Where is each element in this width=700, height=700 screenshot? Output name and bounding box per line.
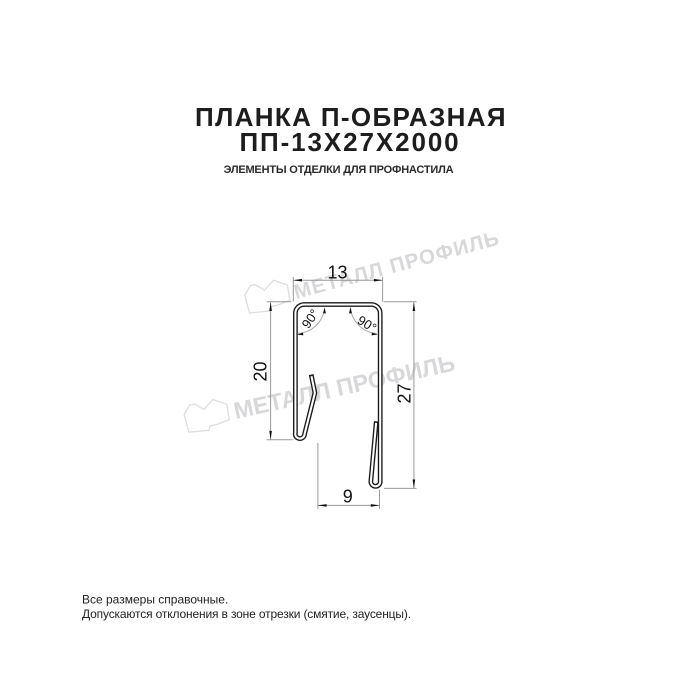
svg-text:Все размеры справочные.: Все размеры справочные. <box>82 593 228 607</box>
svg-text:90°: 90° <box>299 306 323 331</box>
svg-text:13: 13 <box>327 263 347 283</box>
svg-text:ЭЛЕМЕНТЫ ОТДЕЛКИ ДЛЯ ПРОФНАСТИ: ЭЛЕМЕНТЫ ОТДЕЛКИ ДЛЯ ПРОФНАСТИЛА <box>224 164 454 176</box>
svg-text:20: 20 <box>251 361 271 381</box>
svg-text:МЕТАЛЛ ПРОФИЛЬ: МЕТАЛЛ ПРОФИЛЬ <box>291 227 502 304</box>
svg-text:ПП-13Х27Х2000: ПП-13Х27Х2000 <box>239 127 460 157</box>
svg-text:27: 27 <box>395 383 415 403</box>
svg-text:9: 9 <box>343 487 353 507</box>
svg-text:Допускаются отклонения в зоне: Допускаются отклонения в зоне отрезки (с… <box>82 607 411 621</box>
svg-text:МЕТАЛЛ ПРОФИЛЬ: МЕТАЛЛ ПРОФИЛЬ <box>231 350 457 424</box>
svg-text:90°: 90° <box>355 312 380 335</box>
